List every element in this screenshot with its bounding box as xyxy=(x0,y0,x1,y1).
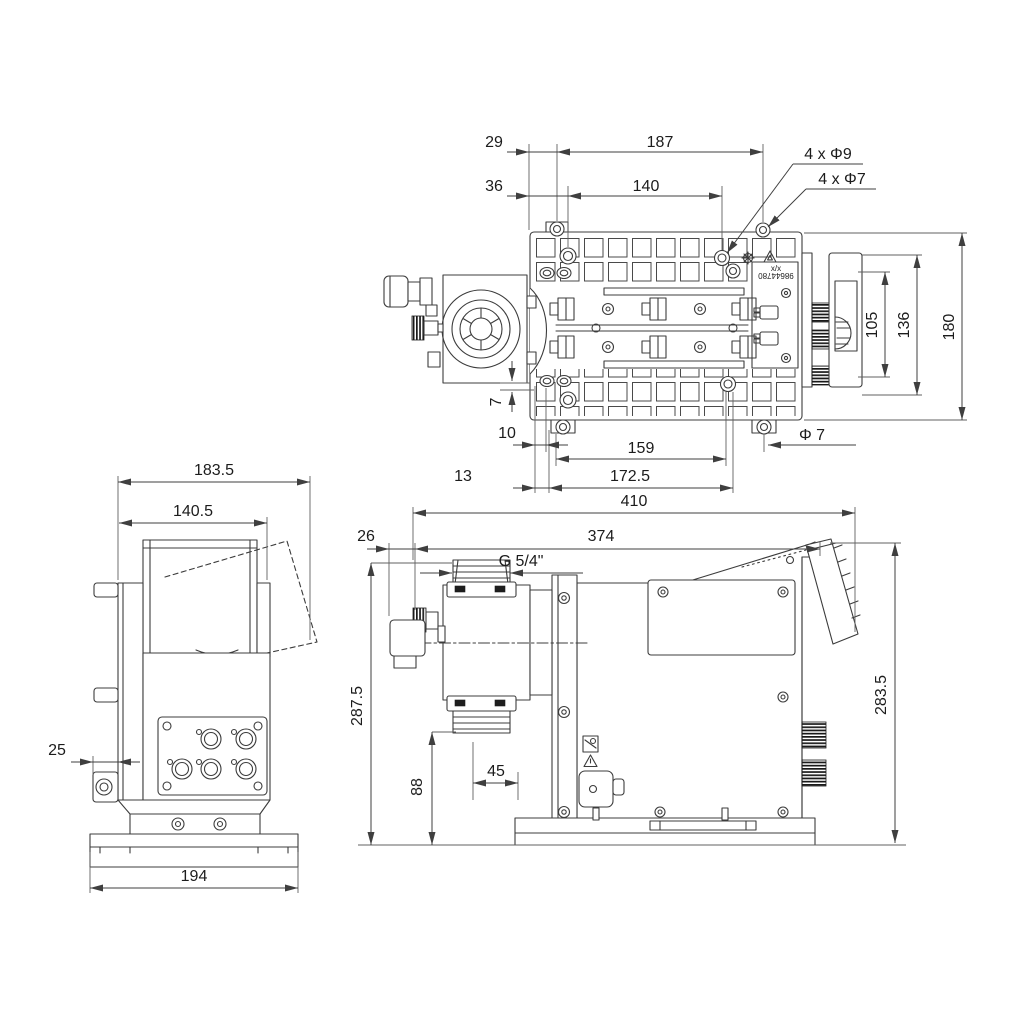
pump-head-top xyxy=(384,275,536,383)
dim-159: 159 xyxy=(628,440,655,457)
base-plate xyxy=(90,834,298,847)
dim-140: 140 xyxy=(633,178,660,195)
knob xyxy=(812,303,829,322)
discharge-connection xyxy=(447,696,516,733)
dim-36: 36 xyxy=(485,178,503,195)
knob xyxy=(802,722,826,748)
dim-374: 374 xyxy=(588,528,615,545)
dim-phi7: Φ 7 xyxy=(799,427,825,444)
connector-plate xyxy=(158,717,267,795)
front-view: 183.5 140.5 25 194 xyxy=(48,462,317,893)
dim-187: 187 xyxy=(647,134,674,151)
cable-gland xyxy=(384,276,437,316)
dim-7: 7 xyxy=(488,397,505,406)
flange-column xyxy=(552,575,577,820)
vent-valve xyxy=(390,608,445,668)
callout-4xphi7: 4 x Φ7 xyxy=(818,171,866,188)
dim-287-5: 287.5 xyxy=(349,686,366,726)
knob xyxy=(812,330,829,349)
dim-25: 25 xyxy=(48,742,66,759)
dim-194: 194 xyxy=(181,868,208,885)
dim-183-5: 183.5 xyxy=(194,462,234,479)
motor-end-top xyxy=(802,253,862,387)
mounting-plate: x/x 98644780 xyxy=(530,222,802,434)
drain-fitting xyxy=(428,352,440,367)
frost-icon xyxy=(742,252,754,264)
dim-45: 45 xyxy=(487,763,505,780)
side-body xyxy=(390,539,860,845)
hole-phi7 xyxy=(756,223,770,237)
callout-4xphi9: 4 x Φ9 xyxy=(804,146,852,163)
dim-140-5: 140.5 xyxy=(173,503,213,520)
hole-phi7-bottom xyxy=(757,420,771,434)
dim-410: 410 xyxy=(621,493,648,510)
left-column xyxy=(118,583,143,800)
dim-13: 13 xyxy=(454,468,472,485)
dim-180: 180 xyxy=(941,314,958,341)
plate-code-text: 98644780 xyxy=(758,271,794,280)
adjustment-knob xyxy=(412,316,443,340)
side-view: 410 26 374 G 5/4" 287.5 88 45 283.5 xyxy=(349,493,906,845)
technical-drawing-page: x/x 98644780 xyxy=(0,0,1024,1024)
dim-136: 136 xyxy=(896,312,913,339)
knob xyxy=(802,760,826,786)
side-cover-plate xyxy=(648,580,795,655)
mounting-bracket xyxy=(93,772,118,802)
pump-head-body xyxy=(443,275,527,383)
dim-29: 29 xyxy=(485,134,503,151)
dim-26: 26 xyxy=(357,528,375,545)
knob xyxy=(812,366,829,385)
dim-g54: G 5/4" xyxy=(499,553,544,570)
front-body xyxy=(90,540,317,867)
dosing-pump-dimension-drawing: x/x 98644780 xyxy=(0,0,1024,1024)
dim-172-5: 172.5 xyxy=(610,468,650,485)
dim-105: 105 xyxy=(864,312,881,339)
dim-10: 10 xyxy=(498,425,516,442)
control-cover xyxy=(143,540,257,653)
dim-283-5: 283.5 xyxy=(873,675,890,715)
dim-88: 88 xyxy=(409,778,426,796)
top-view: x/x 98644780 xyxy=(384,134,967,493)
